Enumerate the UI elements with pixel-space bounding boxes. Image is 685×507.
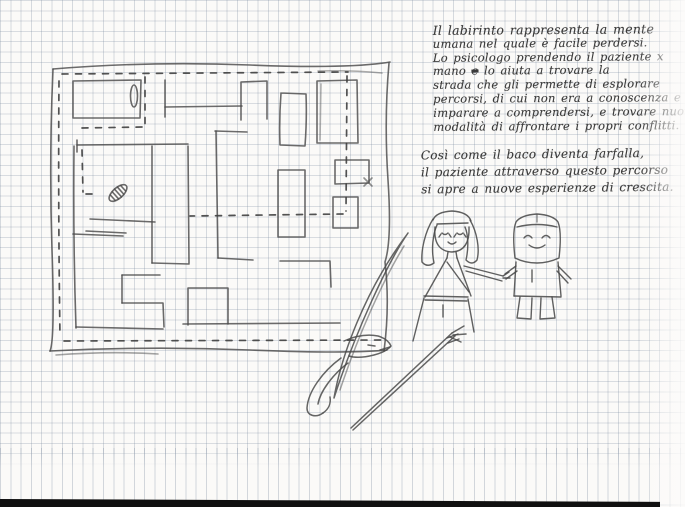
boy-head: [514, 214, 561, 263]
maze-wall-scribble: [131, 85, 138, 107]
boy-figure: [503, 214, 571, 319]
woman-figure: [413, 211, 503, 343]
woman-closed-eye: [439, 233, 451, 237]
woman-hair: [422, 211, 478, 265]
woman-closed-eye: [454, 233, 466, 237]
boy-hair-fringe: [517, 225, 557, 228]
stem-antennae: [351, 326, 466, 430]
handwriting-text: lo aiuta a trovare la: [478, 63, 609, 78]
boy-legs: [517, 297, 555, 319]
boy-body: [503, 262, 571, 297]
handwriting-text: mano: [433, 64, 472, 78]
maze-drawing: [50, 62, 390, 355]
maze-dashed-path: [59, 72, 387, 341]
woman-smile: [448, 242, 456, 244]
page-edge-fade: [639, 0, 685, 507]
boy-happy-eye: [542, 236, 550, 239]
woman-face: [435, 223, 469, 252]
cocoon-icon: [106, 182, 129, 204]
notebook-page-photo: Il labirinto rappresenta la mente umana …: [0, 0, 685, 507]
boy-happy-eye: [524, 236, 532, 239]
maze-inner-walls: [73, 80, 372, 329]
leaf-wing: [334, 233, 408, 398]
boy-smile: [529, 245, 545, 248]
woman-arm: [464, 266, 503, 281]
